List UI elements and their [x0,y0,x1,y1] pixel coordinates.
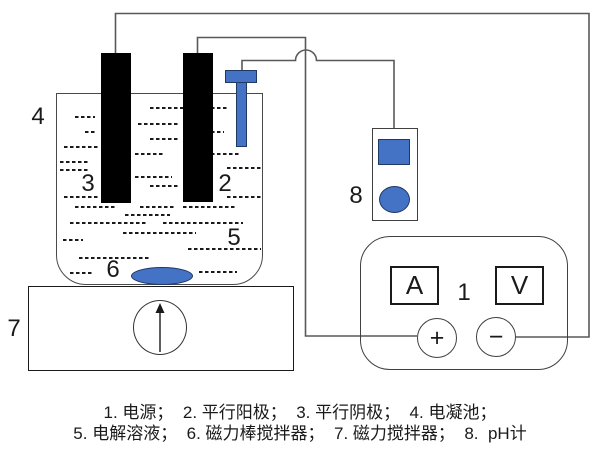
liquid-dash [199,271,237,273]
liquid-dash [135,176,172,178]
voltmeter-label: V [511,270,528,301]
callout-ph-meter: 8 [349,184,362,208]
ph-probe-stem [236,82,247,147]
stirrer-dial [133,300,187,355]
legend-line-2: 5. 电解溶液； 6. 磁力棒搅拌器； 7. 磁力搅拌器； 8. pH计 [0,423,600,444]
liquid-dash [150,138,180,140]
ph-meter-display [378,139,410,165]
dial-arrow [134,301,188,356]
callout-power-supply: 1 [457,281,470,305]
liquid-dash [150,185,178,187]
liquid-dash [138,123,180,125]
liquid-dash [211,153,240,155]
liquid-dash [70,222,147,224]
liquid-dash [123,232,196,234]
liquid-dash [125,214,170,216]
liquid-dash [227,167,261,169]
liquid-dash [211,107,228,109]
legend-line-1: 1. 电源； 2. 平行阳极； 3. 平行阴极； 4. 电凝池； [0,402,600,423]
callout-stir-bar: 6 [106,258,119,282]
positive-terminal-label: + [430,324,445,353]
liquid-dash [60,161,90,163]
legend: 1. 电源； 2. 平行阳极； 3. 平行阴极； 4. 电凝池； 5. 电解溶液… [0,402,600,444]
liquid-dash [64,146,98,148]
liquid-dash [63,239,83,241]
liquid-dash [188,248,261,250]
liquid-dash [135,153,165,155]
liquid-dash [85,131,96,133]
callout-anode: 2 [218,172,231,196]
positive-terminal: + [417,318,457,358]
liquid-dash [183,206,235,208]
callout-cell: 4 [31,105,44,129]
voltmeter: V [495,266,544,305]
ammeter: A [390,266,439,305]
callout-stirrer: 7 [7,317,20,341]
negative-terminal: − [476,317,516,357]
diagram-canvas: A V + − 4 3 2 5 6 7 8 1 1. 电源； 2. 平行阳极； … [0,0,600,476]
callout-cathode: 3 [81,172,94,196]
liquid-dash [75,206,115,208]
liquid-dash [70,272,92,274]
callout-electrolyte: 5 [227,226,240,250]
ph-meter-knob [379,186,410,213]
liquid-dash [75,116,95,118]
magnetic-stir-bar [131,267,193,285]
liquid-dash [227,196,261,198]
negative-terminal-label: − [489,323,504,352]
parallel-cathode-plate [101,53,131,203]
parallel-anode-plate [183,53,213,202]
ph-probe-wire [242,50,394,128]
liquid-dash [140,206,175,208]
ammeter-label: A [406,270,423,301]
